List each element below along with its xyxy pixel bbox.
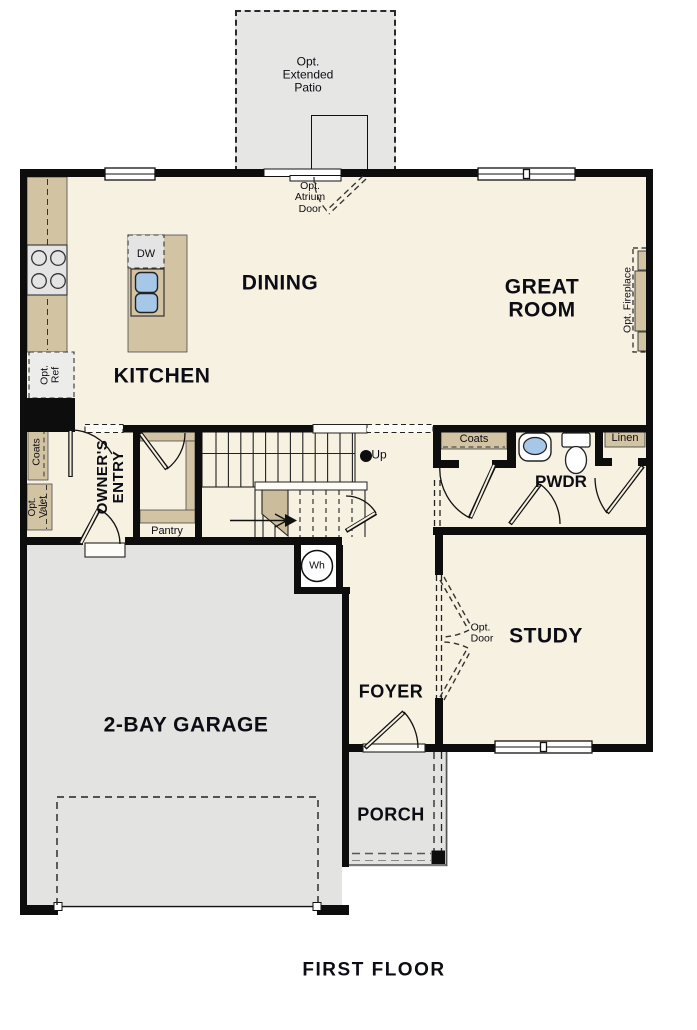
- room-label-foyer: FOYER: [359, 682, 424, 701]
- garage-door-dashed: [57, 797, 318, 905]
- room-label-porch: PORCH: [357, 805, 425, 824]
- label-atrium-door: Opt.AtriumDoor: [295, 181, 325, 215]
- floor-plan: Opt.ExtendedPatio Opt.AtriumDoor DINING …: [0, 0, 697, 1030]
- room-label-garage: 2-BAY GARAGE: [104, 715, 269, 738]
- porch-post: [432, 851, 446, 865]
- room-label-study: STUDY: [509, 626, 583, 649]
- label-pantry: Pantry: [151, 526, 183, 538]
- plan-title: FIRST FLOOR: [302, 961, 445, 982]
- label-opt-valet: Opt.Valet: [28, 496, 50, 518]
- label-coats-hall: Coats: [460, 434, 489, 446]
- room-label-owners-entry: OWNER'SENTRY: [95, 440, 127, 515]
- label-water-heater: Wh: [309, 560, 325, 571]
- label-opt-study-door: Opt.Door: [471, 623, 494, 646]
- label-linen: Linen: [612, 433, 639, 445]
- toilet-icon: [562, 433, 590, 474]
- label-stairs-up: Up: [371, 449, 386, 462]
- room-label-kitchen: KITCHEN: [114, 366, 211, 389]
- room-label-great-room: GREATROOM: [505, 276, 579, 321]
- powder-sink-icon: [519, 433, 551, 461]
- label-extended-patio: Opt.ExtendedPatio: [283, 56, 334, 95]
- dashed-wall-segments: [435, 480, 442, 698]
- plan-linework: [0, 0, 697, 1030]
- front-door-swing: [365, 712, 418, 748]
- stairs-newel-post: [360, 450, 372, 462]
- stair-hall-door-swing: [346, 496, 376, 531]
- room-label-powder: PWDR: [535, 473, 587, 491]
- hall-coats-door-swing: [440, 464, 495, 518]
- label-opt-ref: Opt.Ref: [40, 365, 63, 385]
- range-icon: [27, 245, 67, 295]
- room-label-dining: DINING: [242, 273, 319, 296]
- label-opt-fireplace: Opt. Fireplace: [622, 267, 633, 333]
- linen-door-swing: [595, 466, 643, 513]
- label-coats-entry: Coats: [31, 438, 42, 465]
- label-dishwasher: DW: [137, 249, 155, 261]
- study-optional-double-door: [440, 577, 471, 700]
